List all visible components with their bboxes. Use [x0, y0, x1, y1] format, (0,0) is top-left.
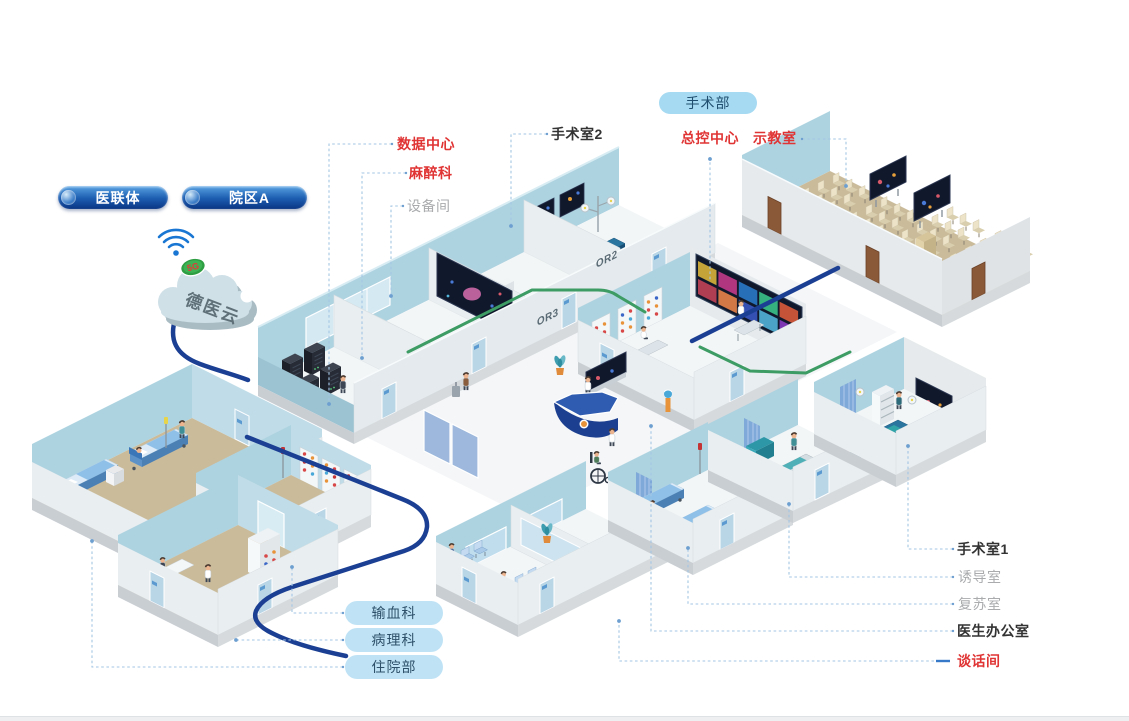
pill-pathology: 病理科: [345, 628, 443, 652]
pill-surgery-department: 手术部: [659, 92, 757, 114]
pill-medical-alliance: 医联体: [58, 186, 168, 209]
label-doctor-office: 医生办公室: [957, 623, 1030, 639]
label-recovery-room: 复苏室: [958, 596, 1002, 612]
label-master-control-center: 总控中心: [681, 130, 739, 146]
label-anesthesiology: 麻醉科: [409, 165, 453, 181]
pill-blood-transfusion: 输血科: [345, 601, 443, 625]
label-induction-room: 诱导室: [958, 569, 1002, 585]
label-data-center: 数据中心: [397, 136, 455, 152]
pill-campus-a: 院区A: [182, 186, 307, 209]
label-equipment-room: 设备间: [407, 198, 451, 214]
cloud-platform: 德医云: [158, 267, 257, 330]
label-demo-classroom: 示教室: [753, 130, 797, 146]
isometric-scene: OR3OR2德医云5G: [0, 0, 1129, 721]
wifi-icon: [159, 230, 193, 256]
footer-strip: [0, 716, 1129, 721]
pill-inpatient: 住院部: [345, 655, 443, 679]
label-operating-room-2: 手术室2: [551, 126, 603, 142]
hospital-solution-diagram: OR3OR2德医云5G 医联体 院区A 手术部 数据中心 麻醉科 设备间 手术室…: [0, 0, 1129, 721]
label-talk-room: 谈话间: [957, 653, 1001, 669]
label-operating-room-1: 手术室1: [957, 541, 1009, 557]
